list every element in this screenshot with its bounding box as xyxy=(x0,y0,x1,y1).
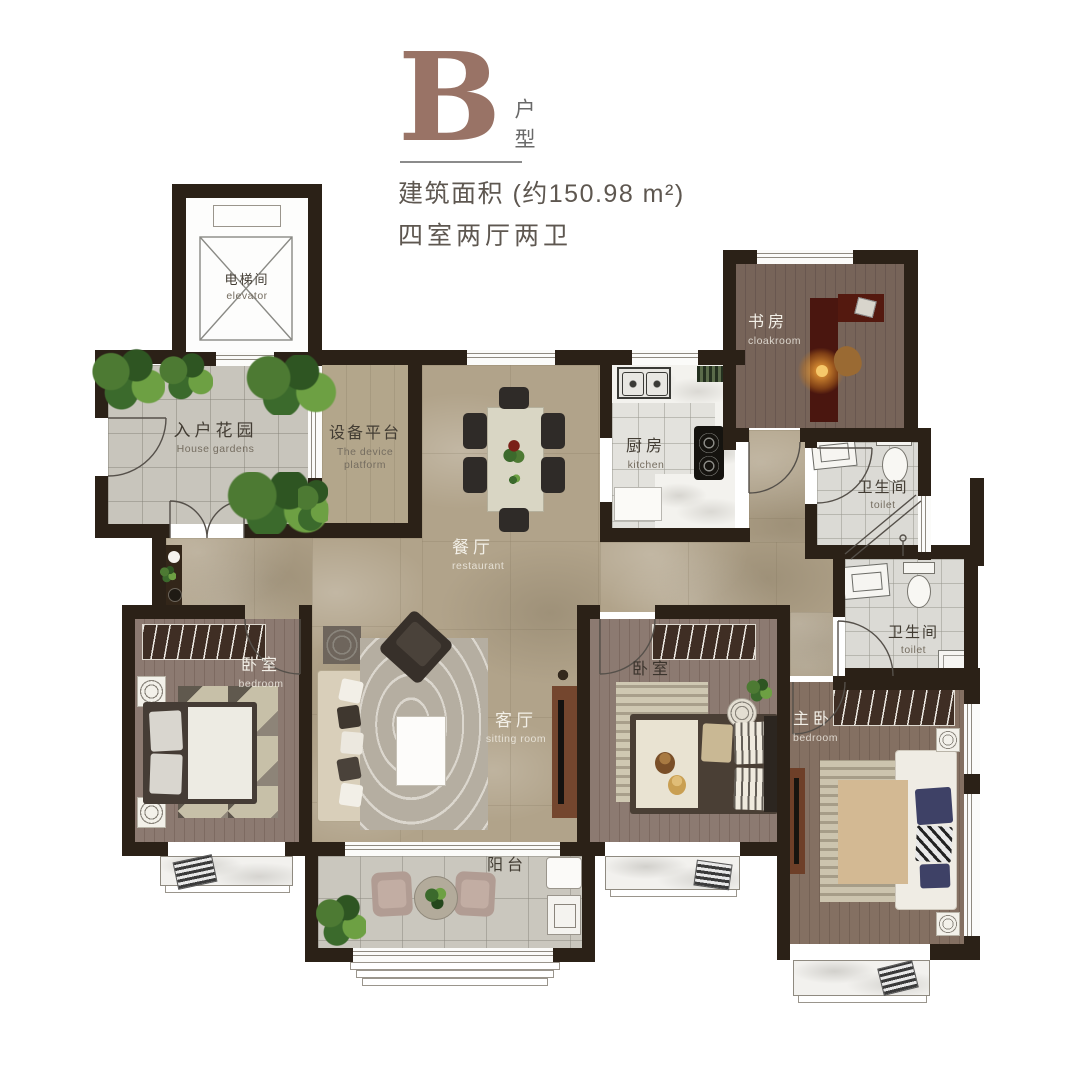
washing-machine xyxy=(546,857,582,889)
label-master-bedroom: 主卧 bedroom xyxy=(793,710,868,745)
toilet-tank xyxy=(903,562,935,574)
wall xyxy=(122,605,245,619)
balcony-step xyxy=(350,962,560,970)
wall xyxy=(553,948,595,962)
label-kitchen: 厨房 kitchen xyxy=(602,437,690,472)
label-bedroom-left: 卧室 bedroom xyxy=(216,656,306,691)
console-plate xyxy=(168,551,180,563)
balcony-chair xyxy=(371,871,413,917)
stove-burner xyxy=(699,456,719,476)
dining-chair xyxy=(541,457,565,493)
plant-small xyxy=(160,565,176,583)
label-bathroom-lower: 卫生间 toilet xyxy=(866,623,961,657)
kitchen-sink xyxy=(617,367,671,399)
dining-chair xyxy=(499,508,529,532)
balcony-sliding-door xyxy=(345,842,560,856)
wall xyxy=(577,605,590,856)
wall xyxy=(964,774,980,794)
dining-chair xyxy=(541,413,565,449)
wall xyxy=(555,350,632,365)
wall xyxy=(805,545,976,559)
wall xyxy=(740,842,790,856)
plant-cluster xyxy=(242,355,337,415)
bed-blanket xyxy=(188,707,252,799)
wall xyxy=(930,944,978,960)
wall xyxy=(777,605,790,960)
balcony-chair xyxy=(454,871,496,917)
armchair-seat xyxy=(395,620,443,668)
sink-basin xyxy=(646,372,668,396)
wall xyxy=(655,605,790,619)
label-dining: 餐厅 restaurant xyxy=(452,537,542,574)
label-living: 客厅 sitting room xyxy=(468,710,564,747)
wall xyxy=(308,184,322,366)
sofa-pillow xyxy=(338,678,364,704)
toilet-bowl xyxy=(907,575,931,608)
wall xyxy=(305,948,353,962)
sofa-pillow xyxy=(337,705,362,730)
plan-type-letter: B xyxy=(398,36,501,158)
wall xyxy=(172,184,322,198)
wall xyxy=(95,524,170,538)
coffee-table xyxy=(396,716,446,786)
radiator xyxy=(693,860,732,891)
floor-lamp xyxy=(323,626,361,664)
nightstand xyxy=(936,728,960,752)
wall xyxy=(299,605,312,856)
bed-blanket xyxy=(838,780,908,884)
balcony-step xyxy=(362,978,548,986)
wardrobe xyxy=(652,624,756,660)
sink-basin xyxy=(819,442,850,462)
corridor-floor-lower xyxy=(790,612,833,676)
bathroom-sink xyxy=(842,563,891,600)
wall xyxy=(723,250,736,450)
laundry-sink xyxy=(547,895,581,935)
sink-basin xyxy=(622,372,644,396)
floor-plan-page: B 户型 建筑面积 (约150.98 m²) 四室两厅两卫 xyxy=(0,0,1080,1080)
window xyxy=(467,350,555,365)
wall xyxy=(172,184,186,366)
bed-pillow xyxy=(701,723,733,763)
sink-basin xyxy=(851,572,882,593)
tv-console xyxy=(552,686,578,818)
bed-pillow xyxy=(915,825,953,863)
label-device-platform: 设备平台 The device platform xyxy=(320,424,410,473)
kitchen-stove xyxy=(694,426,724,480)
table-plant xyxy=(505,472,521,488)
study-lamp xyxy=(816,365,828,377)
label-bedroom-middle: 卧室 xyxy=(632,660,692,681)
nightstand xyxy=(936,912,960,936)
console-bowl xyxy=(168,588,182,602)
bed-pillow xyxy=(915,787,953,825)
label-balcony: 阳台 xyxy=(487,856,547,877)
sofa-pillow xyxy=(339,783,364,808)
dining-chair xyxy=(463,457,487,493)
bed-pillow xyxy=(920,863,951,888)
wardrobe xyxy=(142,624,266,660)
wall xyxy=(560,842,605,856)
kitchen-rack xyxy=(697,366,723,382)
sofa-pillow xyxy=(336,756,361,781)
tv-screen xyxy=(794,778,799,864)
label-bathroom-upper: 卫生间 toilet xyxy=(843,478,923,512)
plant-cluster xyxy=(90,348,165,410)
plan-type-label: 户型 xyxy=(508,98,538,158)
wall xyxy=(845,668,978,682)
label-house-garden: 入户花园 House gardens xyxy=(148,420,283,457)
chair-cushion xyxy=(460,879,489,908)
elevator-door-panel xyxy=(213,205,281,227)
sink-basin xyxy=(554,904,576,928)
bed-headboard xyxy=(764,716,778,812)
console-decor xyxy=(554,666,572,684)
label-study: 书房 cloakroom xyxy=(748,313,828,348)
room-count-text: 四室两厅两卫 xyxy=(398,216,572,252)
teddy-bear xyxy=(668,775,686,795)
bed-pillow xyxy=(149,710,183,752)
building-area-text: 建筑面积 (约150.98 m²) xyxy=(398,174,685,210)
wall xyxy=(970,478,984,566)
corridor-floor xyxy=(600,542,833,612)
window xyxy=(757,250,853,264)
chair-cushion xyxy=(377,879,406,908)
bay-window-outline xyxy=(610,890,737,897)
wall xyxy=(600,528,750,542)
bay-window-outline xyxy=(798,996,927,1003)
plant-cluster xyxy=(298,475,328,535)
wall xyxy=(312,842,345,856)
label-elevator: 电梯间 elevator xyxy=(190,272,304,304)
plant-cluster xyxy=(316,892,366,948)
balcony-step xyxy=(356,970,554,978)
table-plant xyxy=(422,884,450,912)
wall xyxy=(600,364,612,438)
wall xyxy=(805,428,817,448)
teddy-bear xyxy=(655,752,675,774)
wall xyxy=(122,842,168,856)
header-underline xyxy=(400,161,522,163)
kitchen-fridge xyxy=(614,487,662,521)
kitchen-counter xyxy=(655,474,735,528)
wall xyxy=(833,559,845,617)
dining-chair xyxy=(463,413,487,449)
wall xyxy=(698,350,745,365)
bed-pillow xyxy=(149,753,182,794)
wall xyxy=(723,428,749,442)
wall xyxy=(904,250,918,442)
wall xyxy=(122,605,135,856)
window xyxy=(632,350,698,365)
balcony-table xyxy=(414,876,458,920)
plant-cluster xyxy=(158,352,213,400)
wall xyxy=(285,842,312,856)
window xyxy=(964,704,980,774)
window xyxy=(353,948,553,962)
wall xyxy=(582,856,595,962)
wall xyxy=(322,523,422,538)
table-centerpiece xyxy=(503,438,525,466)
stove-burner xyxy=(699,433,719,453)
wall xyxy=(800,428,918,442)
window xyxy=(964,794,980,936)
dining-chair xyxy=(499,387,529,409)
plant-small xyxy=(746,678,772,702)
wall xyxy=(408,350,422,538)
wall xyxy=(723,250,757,264)
wall xyxy=(964,668,980,704)
sofa-pillow xyxy=(340,731,364,755)
